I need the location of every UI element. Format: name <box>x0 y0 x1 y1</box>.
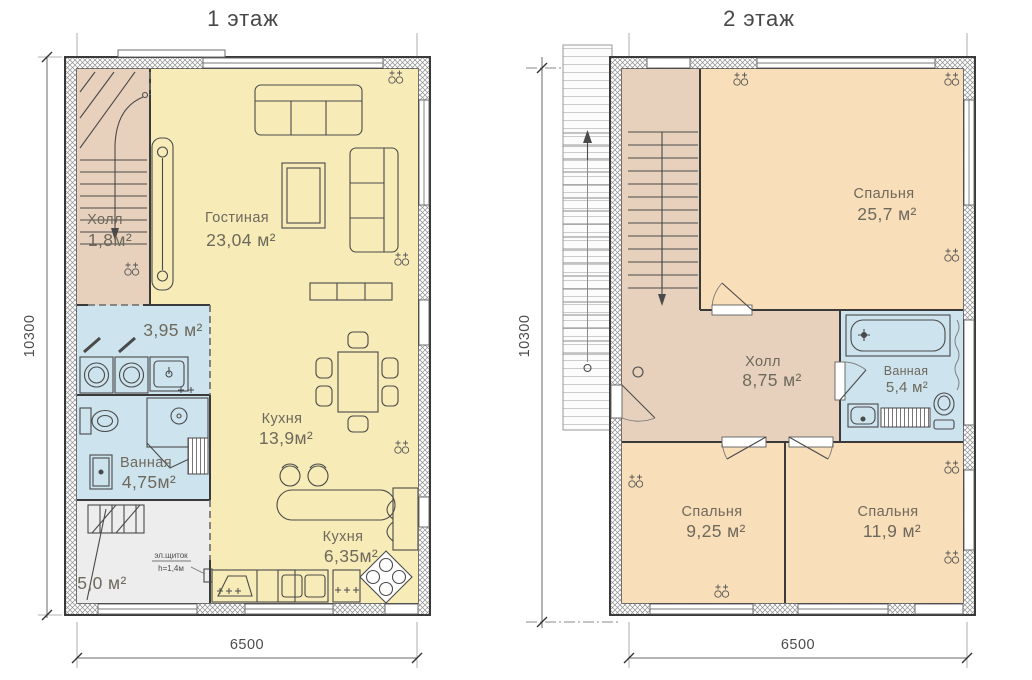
room-area-hall: 1,8м² <box>88 230 132 250</box>
floor2-title: 2 этаж <box>723 6 795 31</box>
room-label-living: Гостиная <box>205 210 269 226</box>
window <box>647 58 690 68</box>
room-area-bathroom2: 5,4 м² <box>886 379 928 396</box>
window <box>964 320 974 425</box>
door-opening <box>789 437 833 447</box>
window <box>964 470 974 550</box>
electrical-panel-height: h=1,4м <box>158 564 184 573</box>
room-area-bedroom1: 25,7 м² <box>857 204 917 224</box>
room-label-bedroom2: Спальня <box>681 504 742 520</box>
entry-door <box>385 604 418 614</box>
room-area-laundry: 3,95 м² <box>143 320 203 340</box>
floorplan-drawing: 1 этаж <box>0 0 1032 680</box>
room-area-storage: 5,0 м² <box>77 573 126 593</box>
door-opening <box>722 437 766 447</box>
dim-height-floor2: 10300 <box>517 315 533 358</box>
floor1-rooms <box>77 69 418 603</box>
room-label-kitchen: Кухня <box>262 411 303 427</box>
room-bedroom1 <box>700 69 963 310</box>
dim-width-floor2: 6500 <box>781 637 815 653</box>
door-opening <box>712 305 752 315</box>
room-area-bedroom3: 11,9 м² <box>863 521 921 541</box>
room-area-hall2: 8,75 м² <box>742 370 802 390</box>
window <box>419 300 429 345</box>
room-label-bathroom: Ванная <box>120 455 172 471</box>
room-label-bedroom1: Спальня <box>853 186 914 202</box>
floor2-plan: 2 этаж <box>517 6 975 668</box>
floor1-title: 1 этаж <box>207 6 279 31</box>
room-area-living: 23,04 м² <box>206 230 276 250</box>
room-label-kitchen2: Кухня <box>323 529 364 545</box>
room-laundry <box>77 305 210 395</box>
window <box>419 497 429 527</box>
dim-height-floor1: 10300 <box>22 315 38 358</box>
room-label-bathroom2: Ванная <box>884 364 929 378</box>
window <box>915 604 963 614</box>
canopy <box>118 50 225 57</box>
electrical-panel-label: эл.щиток <box>154 551 188 560</box>
dim-width-floor1: 6500 <box>230 637 264 653</box>
room-label-bedroom3: Спальня <box>857 504 918 520</box>
floorplan-canvas: 1 этаж <box>0 0 1032 680</box>
external-staircase <box>563 45 612 430</box>
radiator-icon <box>881 408 930 427</box>
radiator-icon <box>188 438 208 474</box>
room-area-bathroom: 4,75м² <box>122 472 176 492</box>
room-label-hall2: Холл <box>745 354 781 370</box>
door-opening <box>835 362 845 400</box>
room-area-kitchen: 13,9м² <box>259 428 313 448</box>
room-label-hall: Холл <box>87 212 123 228</box>
entry-opening <box>611 385 622 418</box>
floor1-plan: 1 этаж <box>22 6 430 668</box>
room-area-bedroom2: 9,25 м² <box>686 521 746 541</box>
room-hall <box>77 69 150 305</box>
room-area-kitchen2: 6,35м² <box>324 546 378 566</box>
